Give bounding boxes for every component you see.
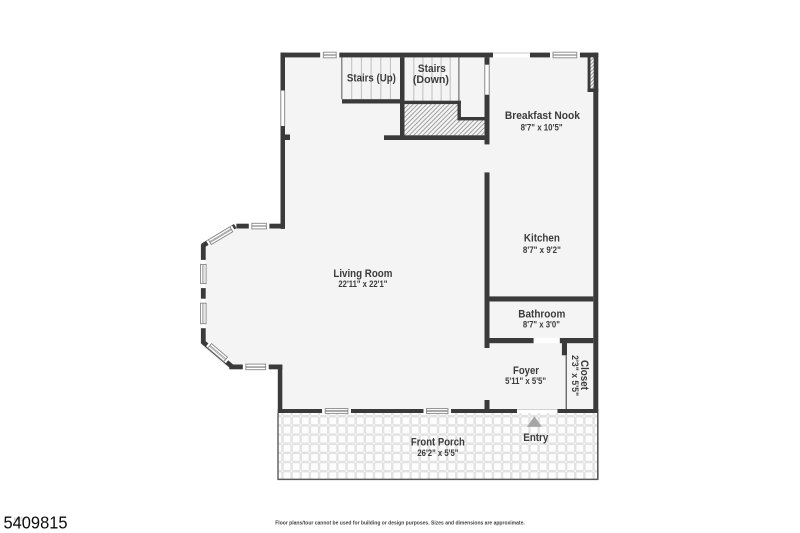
svg-text:Bathroom: Bathroom: [518, 309, 565, 321]
svg-text:Kitchen: Kitchen: [524, 233, 560, 245]
svg-text:Breakfast Nook: Breakfast Nook: [505, 110, 581, 122]
svg-text:8'7" x 9'2": 8'7" x 9'2": [523, 245, 561, 255]
svg-text:Stairs (Up): Stairs (Up): [347, 73, 396, 85]
svg-text:5'11" x 5'5": 5'11" x 5'5": [505, 376, 546, 386]
svg-text:8'7" x 3'0": 8'7" x 3'0": [523, 320, 560, 330]
svg-text:Floor plans/tour cannot be use: Floor plans/tour cannot be used for buil…: [275, 521, 525, 527]
svg-text:Living Room: Living Room: [333, 268, 392, 280]
svg-text:8'7" x 10'5": 8'7" x 10'5": [521, 123, 563, 133]
svg-text:Front Porch: Front Porch: [411, 437, 465, 449]
svg-text:Entry: Entry: [523, 432, 549, 444]
svg-text:Foyer: Foyer: [513, 365, 540, 377]
svg-text:22'11" x 22'1": 22'11" x 22'1": [338, 279, 387, 289]
svg-text:5409815: 5409815: [4, 513, 68, 533]
svg-text:26'2" x 5'5": 26'2" x 5'5": [417, 448, 458, 458]
svg-text:(Down): (Down): [413, 74, 449, 86]
svg-text:2'3" x 5'5": 2'3" x 5'5": [570, 355, 580, 396]
